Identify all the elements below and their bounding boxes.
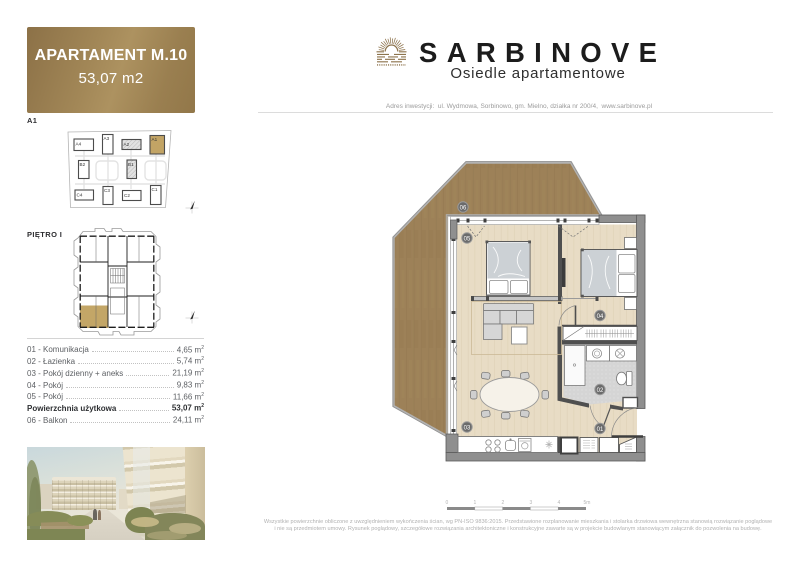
svg-text:02: 02 <box>597 388 604 394</box>
svg-text:A3: A3 <box>104 136 110 141</box>
svg-text:C4: C4 <box>77 193 83 198</box>
svg-text:01: 01 <box>597 427 604 433</box>
svg-text:C1: C1 <box>152 187 158 192</box>
svg-text:B2: B2 <box>80 162 86 167</box>
svg-text:3: 3 <box>530 500 533 506</box>
svg-text:C2: C2 <box>124 193 130 198</box>
svg-text:04: 04 <box>597 314 604 320</box>
svg-text:C3: C3 <box>104 188 110 193</box>
svg-text:A4: A4 <box>76 142 82 147</box>
svg-text:0: 0 <box>446 500 449 506</box>
svg-text:A1: A1 <box>152 137 158 142</box>
svg-text:4: 4 <box>558 500 561 506</box>
svg-text:06: 06 <box>460 205 467 211</box>
svg-text:03: 03 <box>464 425 471 431</box>
svg-text:B1: B1 <box>128 162 134 167</box>
svg-text:1: 1 <box>474 500 477 506</box>
svg-text:5m: 5m <box>584 500 591 506</box>
svg-text:05: 05 <box>464 236 471 242</box>
svg-text:2: 2 <box>502 500 505 506</box>
svg-text:A2: A2 <box>124 142 130 147</box>
